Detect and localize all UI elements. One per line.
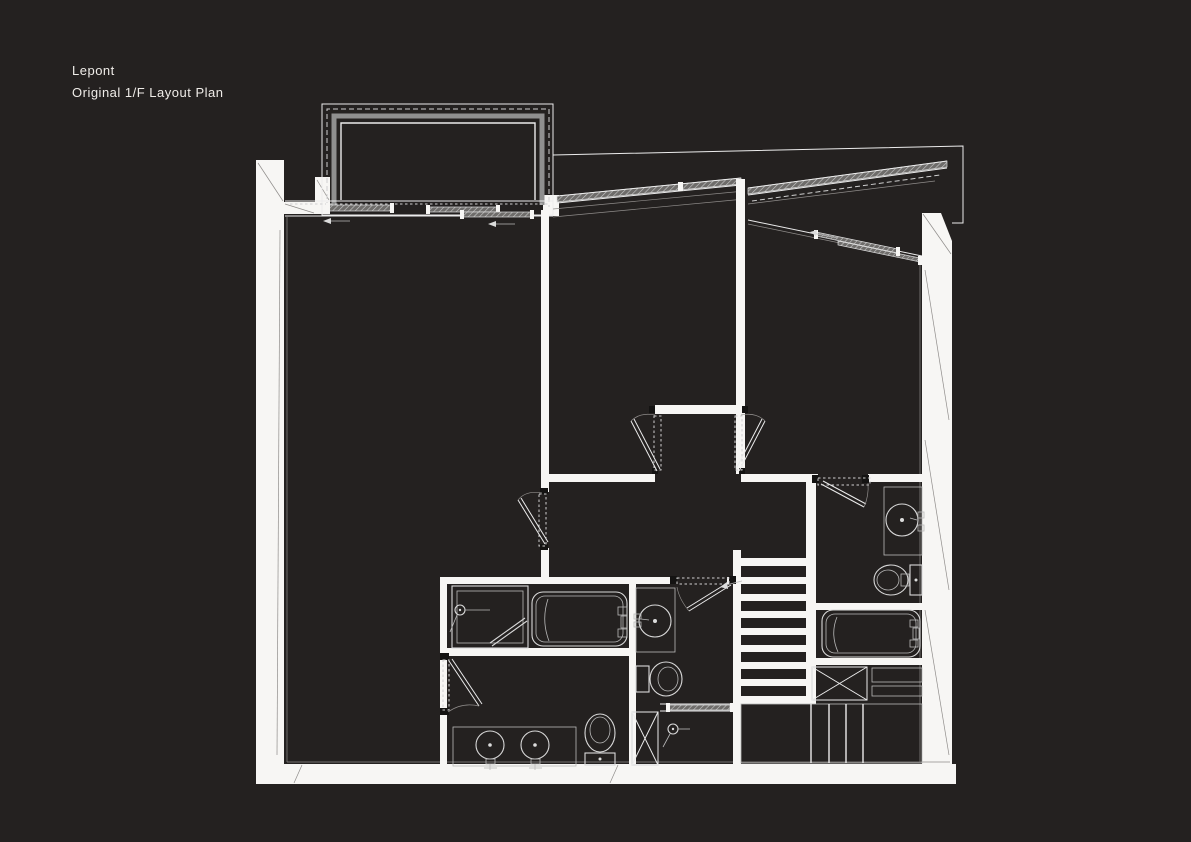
hallway-door bbox=[518, 488, 548, 550]
sloped-glazing bbox=[553, 146, 963, 223]
wardrobe bbox=[741, 704, 922, 763]
interior-walls bbox=[440, 179, 922, 764]
terrace-sliding-partition bbox=[748, 220, 922, 265]
ensuite-bathroom bbox=[812, 487, 924, 700]
ensuite-door bbox=[812, 475, 870, 507]
middle-bathroom-door bbox=[670, 576, 736, 611]
floor-plan-svg bbox=[0, 0, 1191, 842]
main-bathroom bbox=[450, 586, 627, 770]
balcony-bay-window bbox=[322, 104, 553, 215]
floor-plan-page: Lepont Original 1/F Layout Plan bbox=[0, 0, 1191, 842]
middle-bathroom bbox=[634, 588, 734, 747]
